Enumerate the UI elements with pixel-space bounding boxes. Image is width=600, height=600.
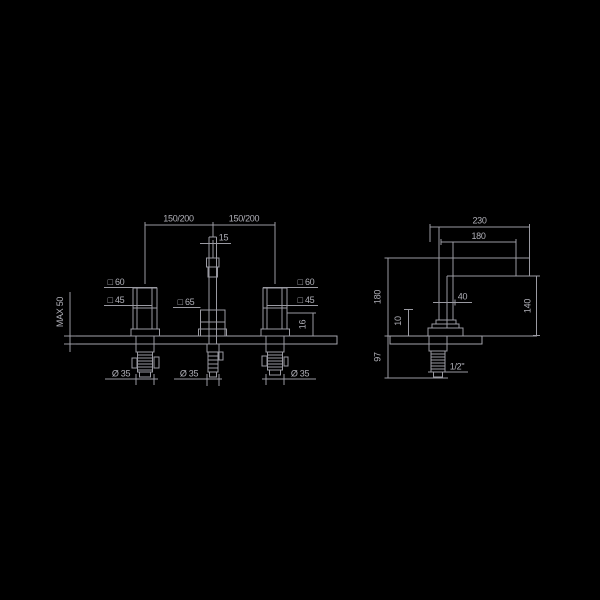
- deck-side: [390, 336, 537, 344]
- technical-drawing-canvas: 150/200 150/200 15: [0, 0, 600, 600]
- tail-center: [207, 344, 223, 377]
- handle-right: [261, 288, 290, 336]
- dim-handle-left: □ 60 □ 45: [104, 277, 157, 306]
- dim-tail-right: Ø 35: [262, 369, 316, 386]
- dim-handle-outer-right-label: □ 60: [298, 277, 315, 287]
- dim-spout-width-label: 15: [219, 233, 229, 243]
- dim-handle-inner-right-label: □ 45: [298, 295, 315, 305]
- spout-front: [199, 237, 227, 336]
- dim-handle-inner-left-label: □ 45: [108, 295, 125, 305]
- spout-side: [388, 227, 537, 336]
- dim-spout-width: 15: [200, 233, 231, 247]
- dim-base-offset-label: 10: [393, 316, 403, 326]
- dim-max-thickness-label: MAX 50: [55, 297, 65, 328]
- tail-right: [262, 344, 288, 375]
- dim-projection-total-label: 230: [472, 216, 486, 226]
- deck-front: [70, 336, 337, 344]
- dim-tail-left-label: Ø 35: [112, 369, 131, 379]
- dim-tail-right-label: Ø 35: [291, 369, 310, 379]
- front-view: 150/200 150/200 15: [55, 214, 337, 387]
- dim-connection-label: 1/2": [450, 362, 465, 372]
- dim-spout-body: □ 65: [173, 297, 201, 308]
- dim-clearance-label: 140: [523, 299, 533, 313]
- dim-handle-outer-left-label: □ 60: [108, 277, 125, 287]
- dim-handle-base-right-label: 16: [298, 320, 308, 330]
- tail-left: [132, 344, 159, 377]
- dim-spread-right-label: 150/200: [229, 214, 260, 224]
- dim-spread-left-label: 150/200: [163, 214, 194, 224]
- dim-projection: 230 180: [430, 216, 530, 277]
- dim-tail-center-label: Ø 35: [180, 369, 199, 379]
- dim-projection-inner-label: 180: [471, 231, 485, 241]
- dim-handle-right: □ 60 □ 45 16: [263, 277, 318, 336]
- side-view: 230 180 40: [373, 216, 541, 379]
- faucet-dimension-drawing: 150/200 150/200 15: [0, 0, 600, 600]
- dim-spout-depth-label: 40: [458, 292, 468, 302]
- handle-left: [131, 288, 160, 336]
- dim-clearance: 140: [523, 276, 541, 336]
- dim-height-above-deck-label: 180: [373, 290, 383, 304]
- dim-spout-body-label: □ 65: [178, 297, 195, 307]
- dim-base-offset: 10: [393, 310, 413, 337]
- dim-tail-length-label: 97: [373, 352, 383, 362]
- dim-max-thickness: MAX 50: [55, 292, 76, 352]
- dim-spread: 150/200 150/200: [145, 214, 275, 285]
